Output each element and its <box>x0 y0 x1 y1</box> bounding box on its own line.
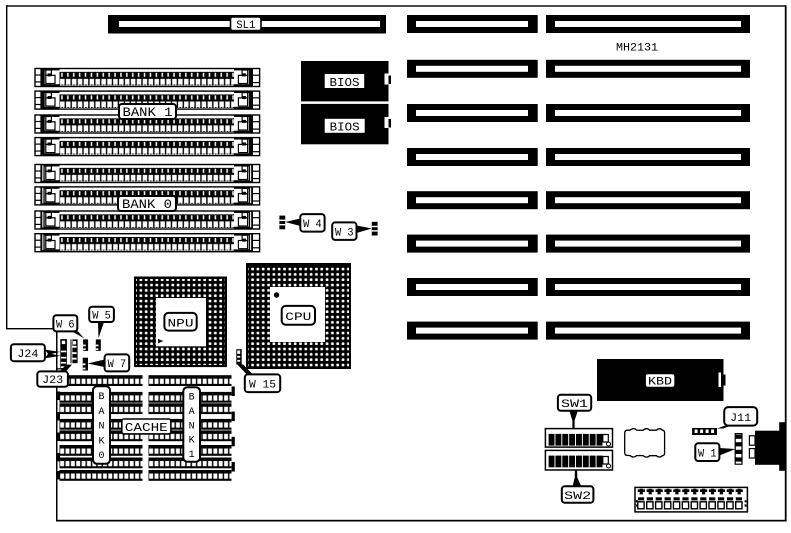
svg-text:B: B <box>98 392 104 403</box>
svg-text:W 4: W 4 <box>303 219 322 231</box>
svg-text:NPU: NPU <box>168 318 194 330</box>
svg-text:N: N <box>98 422 104 433</box>
svg-text:A: A <box>98 407 104 418</box>
svg-text:W 1: W 1 <box>698 449 717 461</box>
svg-text:J23: J23 <box>42 375 63 387</box>
svg-text:BANK 0: BANK 0 <box>122 198 172 212</box>
svg-text:CPU: CPU <box>285 312 311 324</box>
svg-text:W 6: W 6 <box>56 319 75 331</box>
svg-text:BIOS: BIOS <box>330 77 360 90</box>
svg-text:SW1: SW1 <box>561 399 589 411</box>
svg-text:BIOS: BIOS <box>330 122 360 135</box>
svg-text:K: K <box>98 436 104 447</box>
svg-text:W 7: W 7 <box>108 359 127 371</box>
svg-text:0: 0 <box>98 451 104 462</box>
svg-text:BANK 1: BANK 1 <box>123 106 173 120</box>
svg-text:W 5: W 5 <box>92 310 111 322</box>
svg-text:W 3: W 3 <box>335 227 354 239</box>
svg-text:CACHE: CACHE <box>125 421 168 435</box>
svg-text:SL1: SL1 <box>236 20 255 32</box>
svg-text:A: A <box>189 407 195 418</box>
svg-text:W 15: W 15 <box>249 380 276 392</box>
svg-text:N: N <box>189 421 195 432</box>
svg-text:K: K <box>189 436 195 447</box>
svg-text:J11: J11 <box>730 413 751 425</box>
svg-text:B: B <box>189 393 195 404</box>
svg-text:J24: J24 <box>17 349 38 361</box>
svg-text:MH2131: MH2131 <box>616 43 658 55</box>
svg-text:1: 1 <box>189 450 195 461</box>
svg-text:KBD: KBD <box>648 377 672 389</box>
svg-text:SW2: SW2 <box>564 491 591 503</box>
